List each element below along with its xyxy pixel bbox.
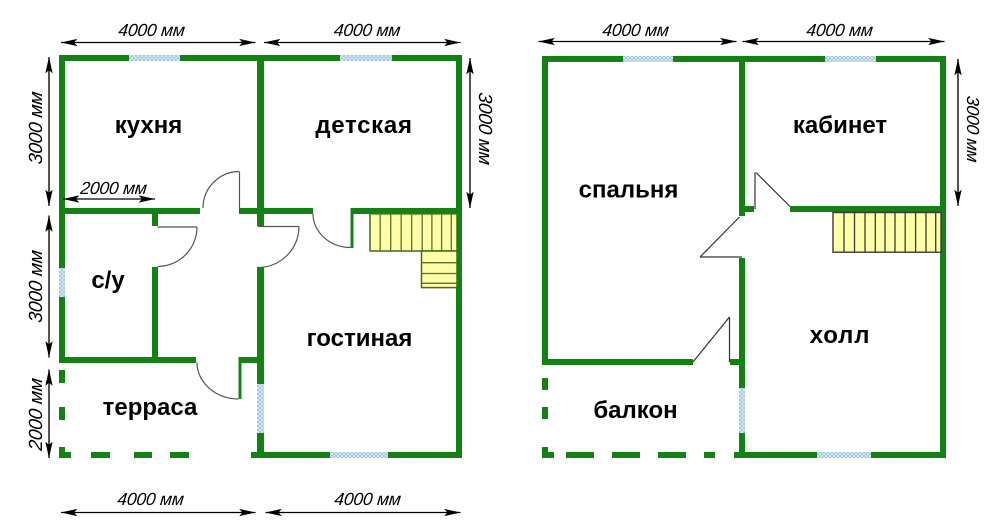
svg-text:3000 мм: 3000 мм: [26, 249, 47, 324]
svg-text:4000 мм: 4000 мм: [601, 20, 670, 40]
svg-text:4000 мм: 4000 мм: [117, 20, 186, 40]
svg-text:4000 мм: 4000 мм: [333, 20, 402, 40]
svg-text:гостиная: гостиная: [307, 325, 413, 352]
svg-text:холл: холл: [810, 322, 871, 349]
svg-text:3000 мм: 3000 мм: [474, 91, 495, 166]
svg-text:кабинет: кабинет: [793, 112, 887, 139]
svg-text:терраса: терраса: [103, 394, 198, 421]
svg-text:3000 мм: 3000 мм: [26, 91, 47, 166]
svg-text:с/у: с/у: [91, 267, 125, 294]
svg-text:кухня: кухня: [115, 112, 183, 139]
svg-text:4000 мм: 4000 мм: [116, 489, 185, 509]
svg-text:спальня: спальня: [579, 177, 679, 204]
svg-text:детская: детская: [315, 112, 412, 139]
svg-text:3000 мм: 3000 мм: [963, 95, 983, 164]
svg-text:2000 мм: 2000 мм: [26, 377, 47, 453]
svg-text:4000 мм: 4000 мм: [805, 20, 874, 40]
svg-text:балкон: балкон: [593, 397, 677, 424]
svg-text:4000 мм: 4000 мм: [333, 489, 402, 509]
svg-text:2000 мм: 2000 мм: [78, 178, 148, 198]
